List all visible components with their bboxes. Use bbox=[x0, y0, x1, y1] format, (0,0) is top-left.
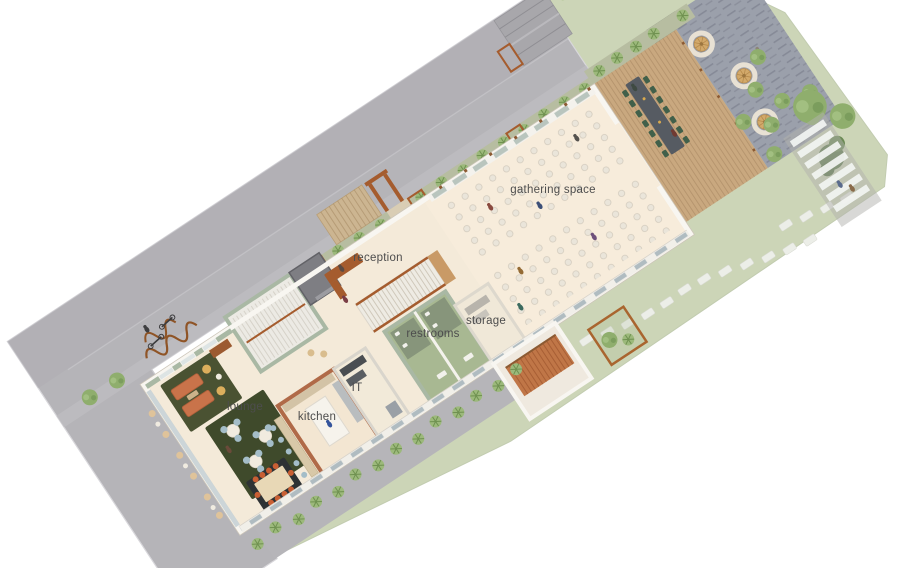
label-gathering-space: gathering space bbox=[510, 184, 596, 196]
site-plan-scene: gathering space reception storage restro… bbox=[0, 0, 900, 568]
rotated-site bbox=[5, 0, 900, 568]
label-restrooms: restrooms bbox=[406, 328, 459, 340]
site-plan-svg bbox=[0, 0, 900, 568]
label-storage: storage bbox=[466, 315, 506, 327]
label-kitchen: kitchen bbox=[298, 411, 336, 423]
label-it: IT bbox=[352, 382, 363, 394]
label-reception: reception bbox=[353, 252, 403, 264]
label-lounge: lounge bbox=[227, 401, 263, 413]
